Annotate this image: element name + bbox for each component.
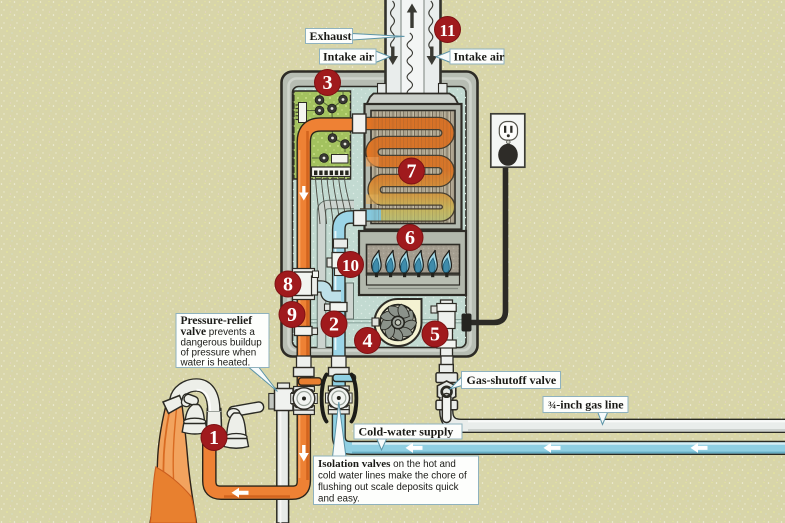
svg-text:water is heated.: water is heated. [180,358,251,369]
svg-text:Exhaust: Exhaust [310,29,352,43]
svg-text:4: 4 [363,330,373,352]
svg-text:8: 8 [283,274,293,296]
svg-text:Gas-shutoff valve: Gas-shutoff valve [467,373,557,387]
svg-text:and easy.: and easy. [318,494,360,505]
svg-text:Intake air: Intake air [323,50,375,64]
svg-text:1: 1 [209,427,219,449]
svg-text:2: 2 [329,314,339,336]
svg-text:11: 11 [439,21,455,40]
svg-text:Intake air: Intake air [454,50,506,64]
svg-text:9: 9 [287,304,297,326]
svg-text:10: 10 [342,256,359,275]
svg-text:¾-inch gas line: ¾-inch gas line [548,398,624,412]
svg-text:6: 6 [405,227,415,249]
svg-text:5: 5 [430,324,440,346]
svg-text:3: 3 [323,72,333,94]
svg-text:flushing out scale deposits qu: flushing out scale deposits quick [318,482,459,493]
svg-text:Isolation valves on the hot an: Isolation valves on the hot and [318,458,456,470]
svg-text:Cold-water supply: Cold-water supply [359,425,454,439]
svg-text:7: 7 [407,161,417,183]
svg-text:valve prevents a: valve prevents a [181,326,256,338]
svg-text:cold water lines make the chor: cold water lines make the chore of [318,471,467,482]
